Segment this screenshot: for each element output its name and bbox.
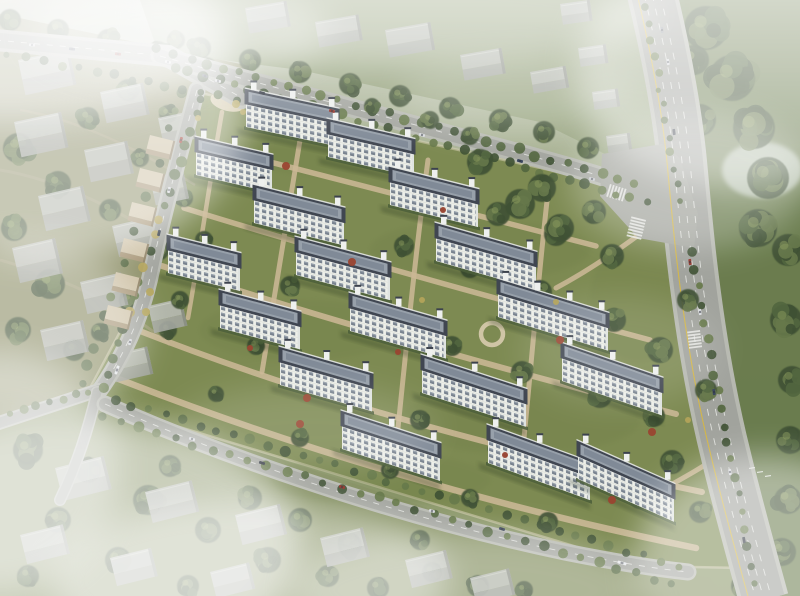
haze-patch	[175, 385, 435, 475]
tree	[481, 150, 490, 159]
roof-stack-body	[381, 252, 387, 260]
roof-stack-cap	[257, 291, 264, 293]
roof-stack	[436, 308, 443, 318]
roof-stack-body	[537, 435, 543, 443]
roof-stack	[284, 339, 291, 349]
tree	[541, 522, 552, 533]
street-tree	[367, 470, 377, 480]
street-tree	[145, 405, 152, 412]
roof-stack	[468, 177, 475, 187]
roof-stack	[296, 186, 303, 196]
roof-stack	[323, 350, 330, 360]
roof-stack-cap	[440, 215, 447, 217]
roof-stack-body	[225, 283, 231, 291]
roof-stack-cap	[284, 339, 291, 341]
roof-stack-cap	[323, 350, 330, 352]
tree-highlight	[543, 516, 549, 522]
vehicle-glass	[699, 311, 701, 313]
roof-stack	[354, 285, 361, 295]
street-tree	[503, 510, 512, 519]
street-tree	[689, 265, 699, 275]
roof-stack-body	[472, 363, 478, 371]
roof-stack-body	[427, 349, 433, 357]
tree-highlight	[783, 432, 791, 440]
roof-stack	[664, 470, 671, 480]
top-atmosphere-veil	[0, 0, 800, 150]
red-accent-tree	[282, 162, 290, 170]
street-tree	[418, 488, 425, 495]
roof-stack-cap	[258, 177, 265, 179]
roof-stack-body	[258, 292, 264, 300]
tree	[511, 201, 526, 216]
red-accent-tree	[395, 349, 401, 355]
roof-stack-body	[432, 169, 438, 177]
roof-stack-body	[355, 286, 361, 294]
tree	[556, 226, 565, 235]
roof-stack-body	[395, 160, 401, 168]
tree-highlight	[785, 372, 793, 380]
building-end-wall	[444, 335, 446, 359]
autumn-tree	[146, 288, 154, 296]
red-accent-tree	[247, 345, 253, 351]
roof-stack	[224, 282, 231, 292]
roof-stack-body	[291, 301, 297, 309]
roof-stack-body	[301, 230, 307, 238]
roof-stack	[526, 239, 533, 249]
street-tree	[529, 151, 540, 162]
tree-highlight	[778, 311, 787, 320]
roof-stack-cap	[201, 234, 208, 236]
roof-stack-body	[503, 273, 509, 281]
roof-stack-cap	[340, 239, 347, 241]
roof-stack	[362, 361, 369, 371]
roof-stack-cap	[471, 362, 478, 364]
roof-stack-body	[231, 243, 237, 251]
street-tree	[410, 506, 419, 515]
roof-stack-cap	[394, 159, 401, 161]
street-tree	[587, 535, 596, 544]
roof-stack	[258, 177, 265, 187]
building-end-wall	[298, 326, 300, 350]
tree-highlight	[175, 295, 180, 300]
street-tree	[449, 516, 457, 524]
roof-stack	[257, 291, 264, 301]
street-tree	[465, 521, 472, 528]
tree-highlight	[212, 389, 216, 393]
tree	[689, 301, 698, 310]
street-tree	[546, 157, 554, 165]
roof-stack-cap	[380, 250, 387, 252]
roof-stack-body	[173, 228, 179, 236]
roof-stack	[516, 376, 523, 386]
roof-stack-body	[259, 178, 265, 186]
street-tree	[520, 515, 529, 524]
roof-stack-body	[567, 292, 573, 300]
vehicle-glass	[689, 261, 691, 263]
street-tree	[622, 549, 630, 557]
roof-stack-body	[441, 216, 447, 224]
roof-stack-cap	[300, 229, 307, 231]
roof-stack	[431, 168, 438, 178]
roof-stack-body	[285, 340, 291, 348]
roof-stack-cap	[436, 308, 443, 310]
roof-stack-cap	[431, 168, 438, 170]
red-accent-tree	[502, 452, 508, 458]
roof-stack-cap	[395, 297, 402, 299]
roof-stack-cap	[582, 434, 589, 436]
tree	[289, 286, 297, 294]
tree-highlight	[473, 154, 480, 161]
street-tree	[319, 479, 326, 486]
street-tree	[717, 405, 725, 413]
roof-stack	[201, 234, 208, 244]
red-accent-tree	[440, 207, 446, 213]
haze-patch	[520, 295, 720, 405]
tree	[786, 324, 796, 334]
roof-stack	[566, 290, 573, 300]
roof-stack-body	[469, 179, 475, 187]
building-end-wall	[524, 403, 526, 427]
street-tree	[111, 395, 121, 405]
roof-stack-body	[484, 229, 490, 237]
roof-stack	[172, 227, 179, 237]
roof-stack	[426, 347, 433, 357]
roof-stack-cap	[566, 290, 573, 292]
autumn-tree	[685, 417, 691, 423]
roof-stack-cap	[623, 452, 630, 454]
tree	[469, 495, 476, 502]
street-tree	[722, 438, 731, 447]
tree	[538, 186, 548, 196]
street-tree	[138, 262, 148, 272]
street-tree	[163, 410, 170, 417]
roof-stack	[334, 196, 341, 206]
roof-stack	[230, 241, 237, 251]
roof-stack-body	[535, 282, 541, 290]
roof-stack	[380, 250, 387, 260]
roof-stack-cap	[468, 177, 475, 179]
aerial-rendering-canvas	[0, 0, 800, 596]
tree-highlight	[465, 493, 470, 498]
street-tree	[696, 282, 703, 289]
roof-stack-body	[583, 435, 589, 443]
building-end-wall	[476, 203, 478, 227]
street-tree	[505, 157, 514, 166]
roof-stack	[395, 297, 402, 307]
roof-stack-cap	[534, 281, 541, 283]
roof-stack-body	[437, 310, 443, 318]
street-tree	[564, 159, 572, 167]
roof-stack-body	[493, 419, 499, 427]
street-tree	[402, 483, 409, 490]
roof-stack-cap	[492, 417, 499, 419]
roof-stack-body	[527, 241, 533, 249]
street-tree	[357, 490, 364, 497]
red-accent-tree	[348, 258, 356, 266]
street-tree	[521, 164, 530, 173]
roof-stack	[492, 417, 499, 427]
roof-stack-body	[335, 197, 341, 205]
roof-stack	[534, 281, 541, 291]
roof-stack-body	[517, 378, 523, 386]
tree	[164, 330, 174, 340]
roof-stack-cap	[664, 470, 671, 472]
street-tree	[392, 499, 400, 507]
tree-highlight	[606, 249, 613, 256]
roof-stack-cap	[526, 239, 533, 241]
roof-stack-cap	[516, 376, 523, 378]
red-accent-tree	[608, 496, 616, 504]
tree-highlight	[447, 340, 453, 346]
tree-highlight	[535, 180, 543, 188]
tree-highlight	[780, 241, 789, 250]
roof-stack-cap	[536, 433, 543, 435]
street-tree	[485, 505, 493, 513]
roof-stack	[471, 362, 478, 372]
tree-highlight	[666, 455, 673, 462]
roof-stack-cap	[362, 361, 369, 363]
roof-stack-body	[202, 235, 208, 243]
red-accent-tree	[648, 428, 656, 436]
roof-stack-cap	[334, 196, 341, 198]
roof-stack	[582, 434, 589, 444]
roof-stack-body	[324, 352, 330, 360]
roof-stack-cap	[483, 227, 490, 229]
street-tree	[555, 527, 564, 536]
tree	[677, 458, 684, 465]
autumn-tree	[419, 297, 425, 303]
vehicle-glass	[713, 391, 715, 393]
roof-stack-cap	[502, 271, 509, 273]
roof-stack-cap	[290, 299, 297, 301]
tree	[497, 214, 506, 223]
roof-stack-body	[341, 241, 347, 249]
street-tree	[126, 402, 135, 411]
roof-stack-cap	[354, 285, 361, 287]
roof-stack-body	[396, 298, 402, 306]
roof-stack	[290, 299, 297, 309]
rendering-viewport	[0, 0, 800, 596]
street-tree	[382, 478, 390, 486]
street-tree	[603, 540, 614, 551]
tree-highlight	[682, 294, 688, 300]
street-tree	[698, 302, 706, 310]
roof-stack	[536, 433, 543, 443]
roof-stack-cap	[296, 186, 303, 188]
tree	[176, 300, 184, 308]
tree-highlight	[512, 195, 520, 203]
street-tree	[121, 259, 129, 267]
tree-highlight	[399, 240, 405, 246]
street-tree	[375, 491, 385, 501]
roof-stack-body	[363, 363, 369, 371]
roof-stack	[394, 159, 401, 169]
roof-stack-cap	[426, 347, 433, 349]
roof-stack	[440, 215, 447, 225]
building-end-wall	[238, 267, 240, 291]
roof-stack-cap	[224, 282, 231, 284]
street-tree	[571, 531, 579, 539]
roof-stack-body	[665, 472, 671, 480]
roof-stack	[300, 229, 307, 239]
roof-stack	[483, 227, 490, 237]
street-tree	[721, 424, 729, 432]
roof-stack	[340, 239, 347, 249]
roof-stack-body	[624, 453, 630, 461]
building-end-wall	[388, 277, 390, 301]
tree-highlight	[492, 207, 499, 214]
roof-stack-cap	[230, 241, 237, 243]
building-end-wall	[438, 457, 440, 481]
roof-stack	[502, 271, 509, 281]
street-tree	[449, 494, 460, 505]
tree-highlight	[516, 366, 522, 372]
roof-stack-body	[297, 188, 303, 196]
roof-stack	[623, 452, 630, 462]
autumn-tree	[553, 299, 559, 305]
tree-highlight	[700, 384, 706, 390]
tree-highlight	[553, 220, 561, 228]
street-tree	[435, 491, 444, 500]
